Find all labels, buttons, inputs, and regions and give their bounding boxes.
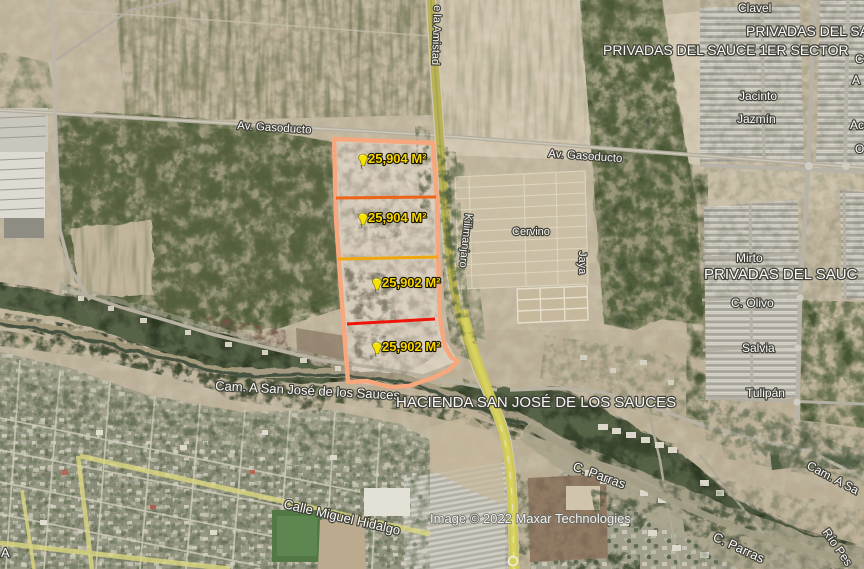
svg-text:25,902 M²: 25,902 M² <box>382 275 441 290</box>
svg-text:C: C <box>855 52 864 66</box>
svg-text:25,904 M²: 25,904 M² <box>368 210 427 225</box>
svg-text:Salvia: Salvia <box>742 341 775 355</box>
svg-text:Tulipán: Tulipán <box>746 386 785 400</box>
svg-text:Cervino: Cervino <box>512 226 550 238</box>
svg-text:Clavel: Clavel <box>738 1 771 15</box>
svg-text:Jacinto: Jacinto <box>739 89 777 103</box>
svg-text:Jaya: Jaya <box>576 251 588 275</box>
svg-text:PRIVADAS DEL SAUCE 1ER SECTOR: PRIVADAS DEL SAUCE 1ER SECTOR <box>603 42 849 58</box>
svg-text:25,902 M²: 25,902 M² <box>382 339 441 354</box>
svg-text:e la Amistad: e la Amistad <box>429 5 443 65</box>
svg-text:Jazmín: Jazmín <box>737 112 776 126</box>
svg-text:Ac: Ac <box>850 118 864 132</box>
svg-text:A: A <box>1 545 10 560</box>
svg-text:PRIVADAS DEL SA: PRIVADAS DEL SA <box>746 23 864 39</box>
svg-text:HACIENDA SAN JOSÉ DE LOS SAUCE: HACIENDA SAN JOSÉ DE LOS SAUCES <box>396 394 676 411</box>
svg-text:Mirto: Mirto <box>736 251 763 265</box>
svg-text:Image © 2022 Maxar Technologie: Image © 2022 Maxar Technologies <box>430 511 631 526</box>
svg-text:A: A <box>852 73 860 87</box>
svg-text:O: O <box>855 142 864 156</box>
svg-text:PRIVADAS DEL SAUC: PRIVADAS DEL SAUC <box>704 266 858 283</box>
svg-text:C. Olivo: C. Olivo <box>731 296 774 310</box>
svg-text:25,904 M²: 25,904 M² <box>368 151 427 166</box>
